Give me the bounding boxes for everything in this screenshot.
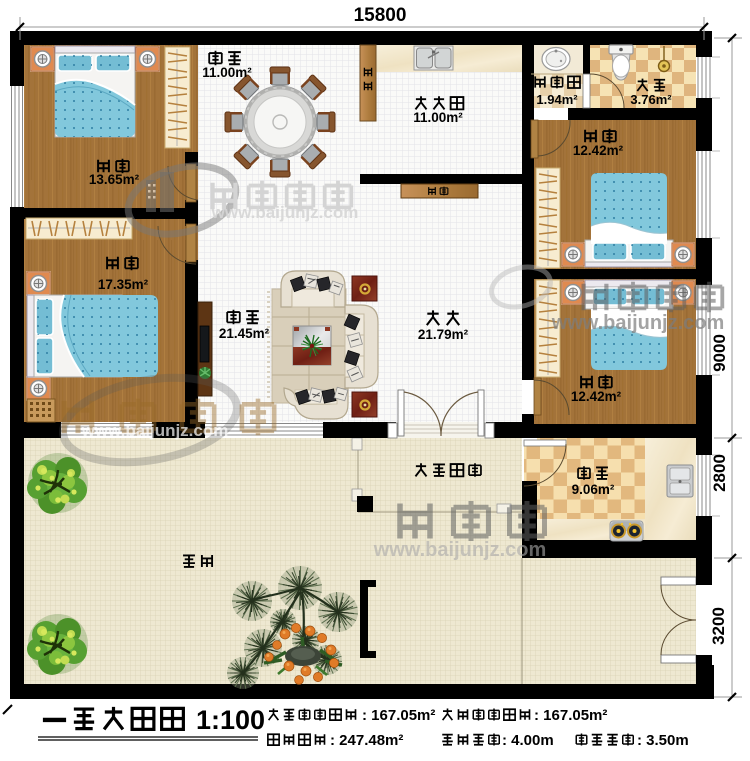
svg-text:: 247.48m²: : 247.48m² bbox=[330, 732, 403, 749]
svg-text:3.76m²: 3.76m² bbox=[630, 92, 672, 107]
svg-text:: 3.50m: : 3.50m bbox=[637, 732, 689, 749]
svg-text:www.baijunjz.com: www.baijunjz.com bbox=[81, 421, 229, 440]
svg-text:15800: 15800 bbox=[354, 5, 407, 26]
svg-text:2800: 2800 bbox=[710, 454, 729, 492]
svg-text:3200: 3200 bbox=[709, 607, 728, 645]
svg-text:21.45m²: 21.45m² bbox=[219, 326, 270, 341]
svg-text:11.00m²: 11.00m² bbox=[202, 65, 252, 80]
svg-text:www.baijunjz.com: www.baijunjz.com bbox=[211, 203, 359, 222]
svg-text:1.94m²: 1.94m² bbox=[536, 92, 578, 107]
svg-text:13.65m²: 13.65m² bbox=[89, 172, 140, 187]
svg-text:21.79m²: 21.79m² bbox=[418, 327, 469, 342]
svg-text:1:100: 1:100 bbox=[196, 705, 265, 735]
svg-text:: 4.00m: : 4.00m bbox=[502, 732, 554, 749]
svg-text:www.baijunjz.com: www.baijunjz.com bbox=[373, 539, 547, 561]
svg-text:9000: 9000 bbox=[710, 334, 729, 372]
svg-text:: 167.05m²: : 167.05m² bbox=[362, 707, 435, 724]
svg-text:11.00m²: 11.00m² bbox=[413, 110, 463, 125]
svg-text:www.baijunjz.com: www.baijunjz.com bbox=[551, 312, 725, 334]
svg-text:: 167.05m²: : 167.05m² bbox=[534, 707, 607, 724]
svg-text:12.42m²: 12.42m² bbox=[571, 389, 622, 404]
svg-text:17.35m²: 17.35m² bbox=[98, 277, 149, 292]
svg-text:12.42m²: 12.42m² bbox=[573, 143, 624, 158]
svg-text:9.06m²: 9.06m² bbox=[572, 482, 615, 497]
